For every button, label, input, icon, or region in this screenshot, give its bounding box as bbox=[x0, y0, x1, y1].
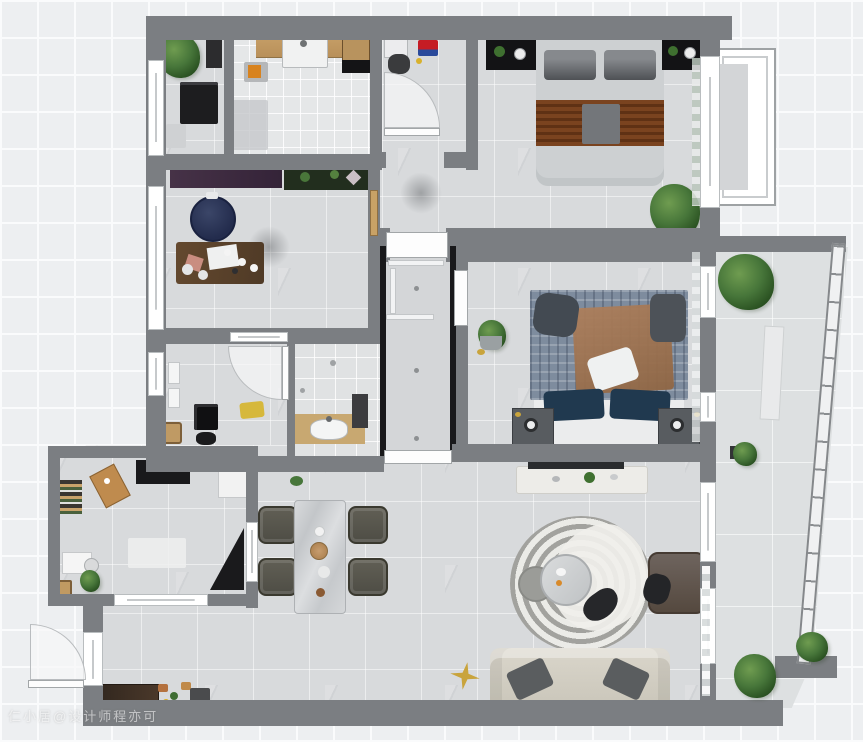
wall-kidsroom-right bbox=[466, 16, 478, 170]
wall-under-top-rooms bbox=[146, 154, 382, 170]
washing-machine bbox=[180, 82, 218, 124]
floor-cushion-2 bbox=[198, 270, 208, 280]
wall-study-right-b bbox=[246, 582, 258, 608]
wall-right-top-a bbox=[700, 16, 720, 56]
shower-storage-rack bbox=[352, 394, 368, 428]
dining-plate-3 bbox=[318, 566, 330, 578]
nightstand-left-gold-item bbox=[515, 412, 521, 417]
coffee-table bbox=[540, 554, 592, 606]
wall-under-bathrooms bbox=[146, 456, 384, 472]
entry-door-jamb bbox=[83, 632, 103, 686]
hallway-bottom-door bbox=[384, 450, 452, 464]
window-left-3 bbox=[148, 352, 164, 396]
balcony-plant-mid bbox=[733, 442, 757, 466]
yellow-bath-mat bbox=[239, 401, 265, 419]
console-plant bbox=[584, 472, 595, 483]
tv-console bbox=[516, 466, 648, 494]
wall-right-master-b bbox=[700, 318, 716, 392]
lounge-chair-cushion bbox=[206, 192, 218, 199]
sliding-glass-door-1 bbox=[700, 482, 716, 562]
round-lounge-chair bbox=[190, 196, 236, 242]
wall-kitchen-kidsroom bbox=[370, 16, 382, 168]
wall-right-master-c bbox=[700, 422, 716, 464]
entry-door-leaf bbox=[28, 680, 84, 688]
hallway-wall-left bbox=[380, 246, 386, 458]
wall-laundry-kitchen bbox=[224, 36, 234, 158]
master-curtain bbox=[692, 252, 700, 442]
nightstand-right-clock bbox=[670, 418, 684, 432]
wardrobe-right-plant bbox=[668, 46, 678, 56]
study-plant bbox=[80, 570, 100, 592]
wall-study-top bbox=[48, 446, 258, 458]
wardrobe-left-lamp bbox=[514, 48, 526, 60]
floor-drain-2 bbox=[300, 388, 305, 393]
hallway-closet-panel-3 bbox=[386, 314, 434, 320]
ceiling-light-shadow-1 bbox=[400, 172, 442, 214]
hallway-closet-panel-1 bbox=[388, 260, 444, 266]
bath-washer bbox=[194, 404, 218, 430]
balcony-plant-low-2 bbox=[796, 632, 828, 662]
shoe-1 bbox=[158, 684, 168, 692]
wall-right-top-b bbox=[700, 208, 720, 250]
window-master-1 bbox=[700, 266, 716, 318]
nightstand-left-clock bbox=[524, 418, 538, 432]
shower-faucet bbox=[326, 416, 332, 422]
wall-master-left-b bbox=[456, 326, 468, 446]
tea-table-papers bbox=[207, 244, 240, 270]
window-bay-opening bbox=[700, 56, 720, 208]
wall-study-left bbox=[48, 446, 60, 606]
red-toy-box bbox=[418, 40, 438, 56]
dining-plate-2 bbox=[310, 542, 328, 560]
entry-door-swing bbox=[30, 624, 86, 680]
dining-chair-4 bbox=[348, 558, 388, 596]
hallway-light-3 bbox=[414, 436, 419, 441]
study-bottom-window bbox=[114, 594, 208, 606]
coffee-table-orange-item bbox=[556, 580, 562, 586]
bath-shelf-2 bbox=[168, 388, 180, 408]
tearoom-door-leaf bbox=[370, 190, 378, 236]
kidsroom-door-leaf bbox=[384, 128, 440, 136]
bedroom2-pillow-left bbox=[544, 50, 596, 80]
shelf-plant-1 bbox=[300, 172, 310, 182]
balcony-plant-low-1 bbox=[734, 654, 776, 698]
shower-basin bbox=[310, 419, 348, 440]
tea-cup-3 bbox=[250, 264, 258, 272]
wall-study-bottom-left bbox=[48, 594, 114, 606]
kids-chair bbox=[388, 54, 410, 74]
bath-shelf-1 bbox=[168, 362, 180, 384]
study-rug bbox=[128, 538, 186, 568]
bath-chair bbox=[196, 432, 216, 445]
wall-bottom-main bbox=[83, 700, 783, 726]
hallway-closet-panel-2 bbox=[390, 268, 396, 314]
bathroom-door-leaf bbox=[282, 346, 289, 400]
master-basket bbox=[480, 336, 502, 350]
wardrobe-left-plant bbox=[494, 46, 505, 57]
master-blanket-fold-left bbox=[531, 291, 580, 339]
floor-cushion-1 bbox=[182, 264, 193, 275]
tea-cup-2 bbox=[224, 249, 231, 256]
study-right-window bbox=[246, 522, 258, 582]
dining-chair-2 bbox=[258, 558, 298, 596]
wall-kidsroom-bottom-left bbox=[370, 152, 386, 168]
bedroom2-throw-band bbox=[582, 104, 620, 144]
wall-master-left-a bbox=[456, 246, 468, 270]
coffee-table-paper bbox=[556, 568, 566, 576]
console-item-1 bbox=[552, 476, 560, 482]
hallway-top-door bbox=[386, 232, 448, 258]
wall-master-bottom bbox=[452, 444, 714, 462]
tea-cup-1 bbox=[238, 258, 246, 266]
tea-table-item bbox=[232, 268, 238, 274]
master-bedroom-door bbox=[454, 270, 468, 326]
shelf-plant-2 bbox=[330, 170, 339, 179]
wall-right-living-a bbox=[700, 464, 716, 482]
board-dot bbox=[104, 478, 110, 484]
wall-study-right-a bbox=[246, 446, 258, 522]
living-sheer-curtain bbox=[702, 566, 710, 696]
kitchen-cooktop bbox=[342, 60, 370, 73]
master-wall-tv bbox=[528, 462, 624, 469]
bathroom-top-window bbox=[230, 332, 288, 342]
study-bookshelf bbox=[60, 480, 82, 514]
kids-toy-dot bbox=[416, 58, 422, 64]
laundry-storage-cabinet bbox=[206, 38, 222, 68]
kitchen-floor-mat bbox=[232, 100, 268, 150]
dining-floor-plant bbox=[290, 476, 303, 486]
bedroom2-pillow-right bbox=[604, 50, 656, 80]
wall-right-master-a bbox=[700, 250, 716, 266]
master-blanket-fold-right bbox=[650, 294, 686, 342]
bedroom2-curtain bbox=[692, 58, 700, 206]
kitchen-faucet bbox=[300, 40, 307, 47]
wall-bedroom2-bottom bbox=[458, 228, 714, 262]
cutting-board bbox=[248, 65, 261, 78]
floor-drain-1 bbox=[330, 360, 336, 366]
window-left-1 bbox=[148, 60, 164, 156]
window-left-2 bbox=[148, 186, 164, 330]
laundry-floor-mat bbox=[166, 124, 186, 148]
shoe-plant bbox=[170, 692, 178, 700]
wall-foyer-west-a bbox=[83, 598, 103, 632]
window-master-2 bbox=[700, 392, 716, 422]
wall-balcony-top bbox=[700, 236, 846, 252]
floor-plan-screenshot: 仁小居@设计师程亦可 bbox=[0, 0, 863, 742]
dining-plate-4 bbox=[316, 588, 325, 597]
watermark-text: 仁小居@设计师程亦可 bbox=[8, 706, 158, 725]
master-gold-dot bbox=[477, 349, 485, 355]
balcony-plant-top bbox=[718, 254, 774, 310]
dining-plate-1 bbox=[314, 526, 325, 537]
hallway-light-1 bbox=[414, 286, 419, 291]
console-item-2 bbox=[610, 474, 618, 480]
dining-chair-3 bbox=[348, 506, 388, 544]
dining-chair-1 bbox=[258, 506, 298, 544]
hallway-light-2 bbox=[414, 368, 419, 373]
